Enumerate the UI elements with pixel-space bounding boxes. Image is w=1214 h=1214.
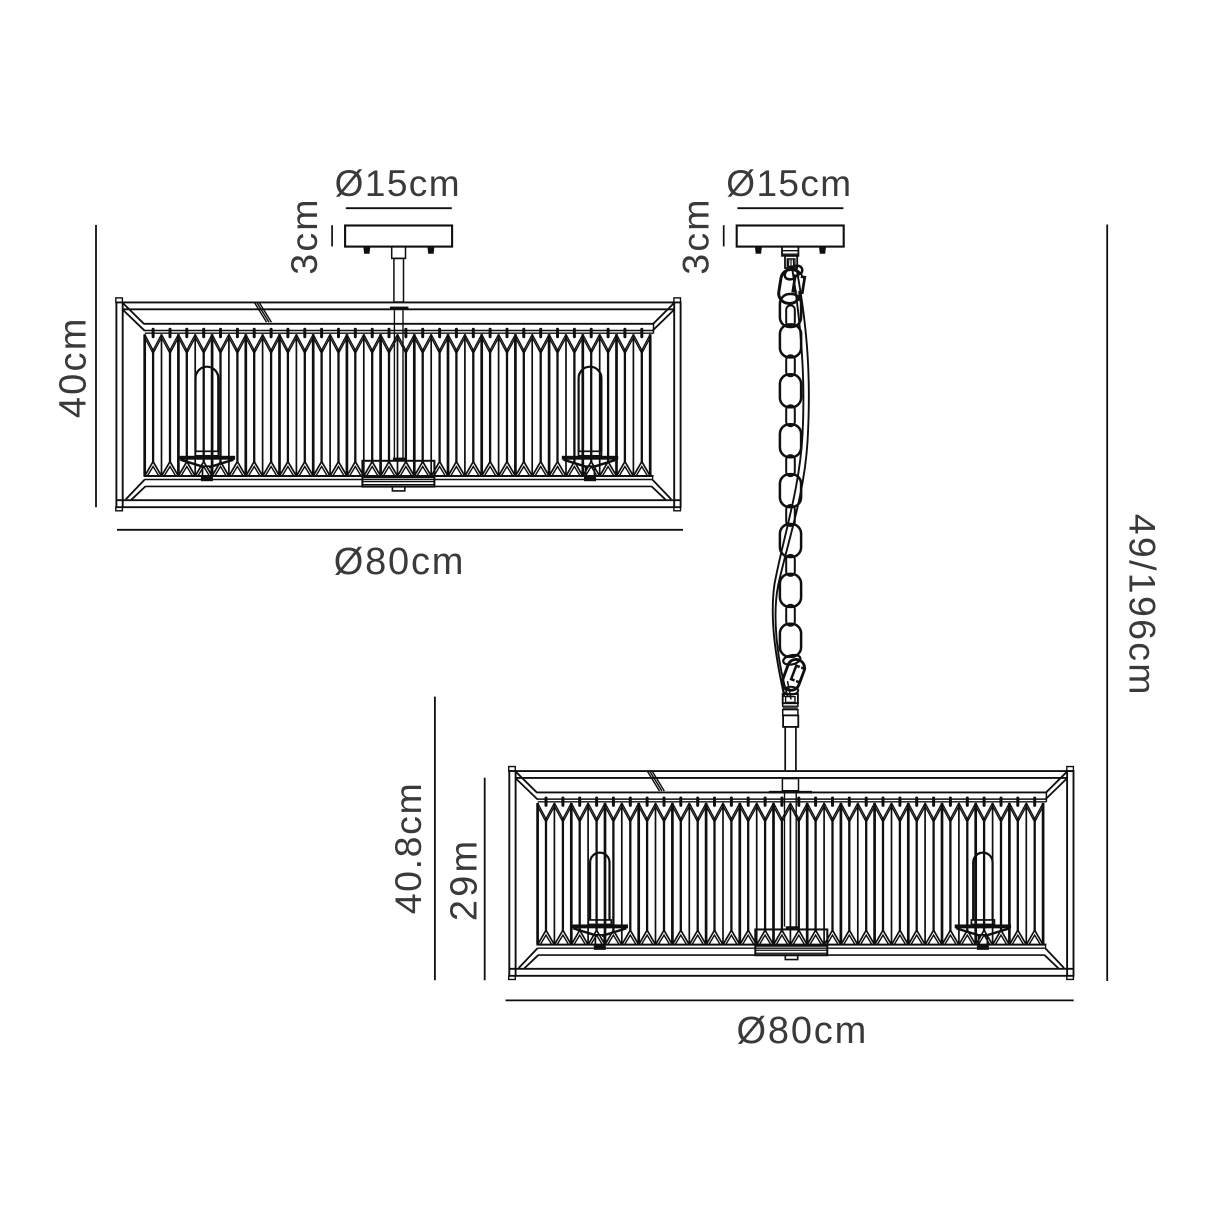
- svg-text:Ø15cm: Ø15cm: [335, 163, 461, 204]
- svg-text:Ø80cm: Ø80cm: [334, 541, 465, 583]
- svg-text:Ø15cm: Ø15cm: [726, 163, 852, 204]
- svg-text:3cm: 3cm: [675, 197, 717, 274]
- svg-text:Ø80cm: Ø80cm: [737, 1010, 868, 1052]
- svg-text:49/196cm: 49/196cm: [1122, 514, 1164, 697]
- svg-text:3cm: 3cm: [283, 197, 325, 274]
- svg-text:29m: 29m: [444, 838, 486, 922]
- svg-text:40.8cm: 40.8cm: [387, 782, 429, 915]
- svg-text:40cm: 40cm: [53, 316, 95, 418]
